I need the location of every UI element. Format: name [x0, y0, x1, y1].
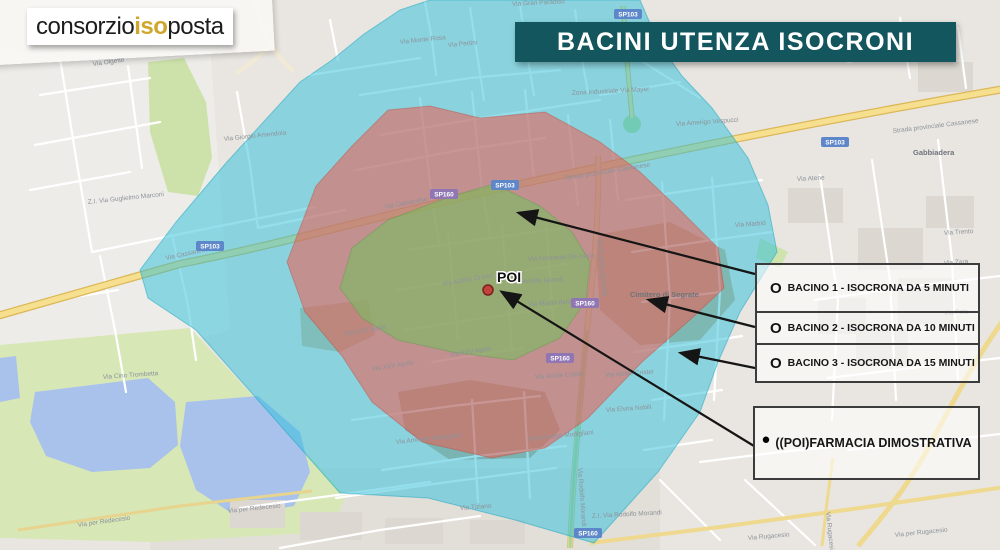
legend: O BACINO 1 - ISOCRONA DA 5 MINUTI O BACI…: [755, 263, 980, 383]
road-badge: SP103: [491, 180, 519, 190]
page-title: BACINI UTENZA ISOCRONI: [515, 22, 956, 62]
road-badge: SP160: [546, 353, 574, 363]
slide-canvas: Via OlgetteZ.I. Via Guglielmo MarconiVia…: [0, 0, 1000, 550]
logo-text-iso: iso: [134, 15, 167, 39]
legend-item-bacino-2: O BACINO 2 - ISOCRONA DA 10 MINUTI: [755, 311, 980, 345]
road-badge: SP103: [196, 241, 224, 251]
poi-legend-label: ((POI)FARMACIA DIMOSTRATIVA: [775, 436, 971, 450]
svg-text:SP160: SP160: [550, 356, 570, 363]
dot-bullet-icon: ●: [761, 432, 770, 447]
road-badge: SP103: [821, 137, 849, 147]
circle-bullet-icon: O: [770, 356, 782, 371]
svg-text:SP103: SP103: [825, 140, 845, 147]
street-label: Cimitero di Segrate: [630, 290, 699, 299]
logo: consorzioisoposta: [27, 8, 233, 45]
road-badge: SP160: [571, 298, 599, 308]
road-badge: SP160: [430, 189, 458, 199]
logo-text-posta: posta: [167, 15, 223, 39]
road-badge: SP103: [614, 9, 642, 19]
street-label: Gabbiadera: [913, 148, 955, 157]
legend-item-bacino-3: O BACINO 3 - ISOCRONA DA 15 MINUTI: [755, 343, 980, 383]
legend-item-label: BACINO 1 - ISOCRONA DA 5 MINUTI: [788, 282, 969, 294]
svg-text:SP160: SP160: [575, 301, 595, 308]
legend-item-label: BACINO 3 - ISOCRONA DA 15 MINUTI: [788, 357, 975, 369]
legend-item-poi: ● ((POI)FARMACIA DIMOSTRATIVA: [753, 406, 980, 480]
legend-item-bacino-1: O BACINO 1 - ISOCRONA DA 5 MINUTI: [755, 263, 980, 313]
road-badge: SP160: [574, 528, 602, 538]
logo-text-consorzio: consorzio: [36, 15, 134, 39]
svg-text:SP160: SP160: [578, 531, 598, 538]
svg-text:SP103: SP103: [618, 12, 638, 19]
svg-text:SP160: SP160: [434, 192, 454, 199]
poi-label: POI: [497, 269, 521, 285]
street-label: Via Atene: [797, 175, 825, 183]
circle-bullet-icon: O: [770, 321, 782, 336]
circle-bullet-icon: O: [770, 281, 782, 296]
legend-item-label: BACINO 2 - ISOCRONA DA 10 MINUTI: [788, 322, 975, 334]
svg-text:SP103: SP103: [200, 244, 220, 251]
svg-text:SP103: SP103: [495, 183, 515, 190]
